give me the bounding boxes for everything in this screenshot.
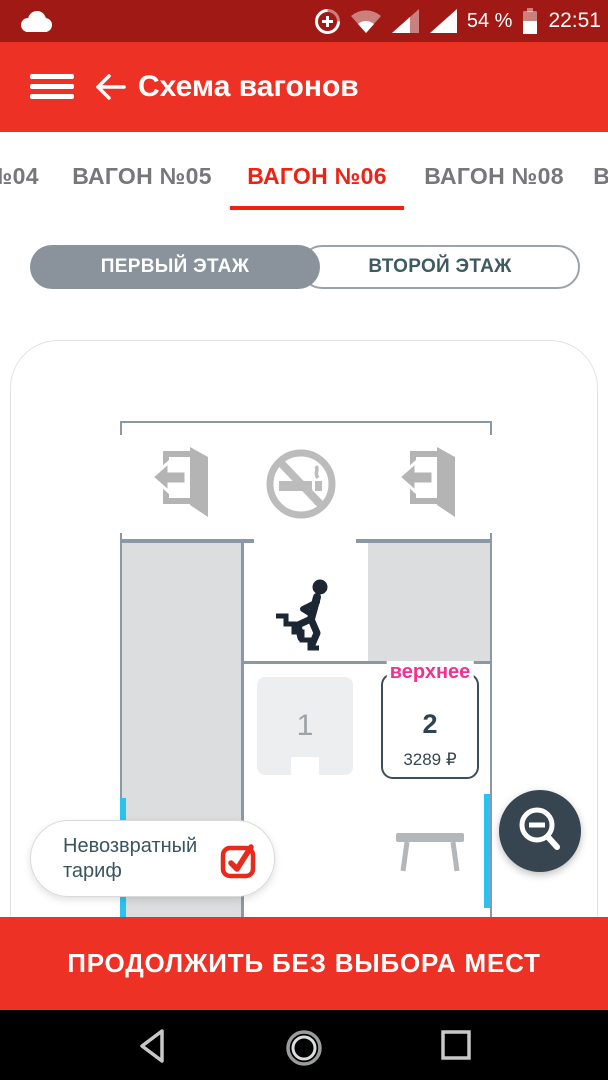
cell-signal-1-icon (391, 9, 420, 34)
tab-carriage-09[interactable]: ВАГОН №09 (593, 163, 608, 190)
status-bar: 54 % 22:51 (0, 0, 608, 42)
non-refundable-tariff-chip[interactable]: Невозвратный тариф (30, 820, 275, 897)
nav-home-icon[interactable] (284, 1028, 324, 1068)
tab-carriage-04[interactable]: ВАГОН №04 (0, 163, 39, 190)
carriage-tabs: ВАГОН №04 ВАГОН №05 ВАГОН №06 ВАГОН №08 … (0, 132, 608, 230)
tab-carriage-08[interactable]: ВАГОН №08 (424, 163, 564, 190)
car-right-wall (490, 533, 492, 926)
seat-2-price: 3289 ₽ (383, 750, 477, 770)
app-bar: Схема вагонов (0, 42, 608, 132)
cloud-icon (18, 10, 54, 34)
rzd-carriage-scheme-screen: 54 % 22:51 Схема вагонов ВАГОН №04 ВАГОН… (0, 0, 608, 1080)
tab-carriage-05[interactable]: ВАГОН №05 (72, 163, 212, 190)
car-top-left-tick (120, 421, 122, 435)
seat-1[interactable]: 1 (257, 677, 353, 775)
zoom-out-button[interactable] (499, 790, 581, 872)
nav-back-icon[interactable] (137, 1028, 167, 1064)
toggle-second-floor[interactable]: ВТОРОЙ ЭТАЖ (300, 245, 580, 289)
floor-toggle: ВТОРОЙ ЭТАЖ ПЕРВЫЙ ЭТАЖ (30, 245, 580, 289)
continue-without-seats-button[interactable]: ПРОДОЛЖИТЬ БЕЗ ВЫБОРА МЕСТ (0, 917, 608, 1010)
tariff-chip-label: Невозвратный тариф (63, 834, 213, 884)
data-saver-icon (314, 8, 341, 35)
menu-icon[interactable] (30, 74, 74, 104)
checkbox-checked-icon[interactable] (218, 839, 260, 881)
seat-1-number: 1 (297, 709, 314, 742)
seat-2-berth-type: верхнее (387, 661, 474, 684)
battery-icon (521, 7, 539, 35)
right-service-block (368, 543, 490, 663)
exit-door-right-icon (397, 445, 465, 519)
cell-signal-2-icon (429, 9, 458, 34)
nav-recents-icon[interactable] (439, 1028, 473, 1062)
available-marker-right (484, 794, 490, 908)
no-smoking-icon (263, 446, 339, 522)
seat-1-entry-notch (291, 757, 319, 775)
seat-2[interactable]: верхнее 2 3289 ₽ (381, 673, 479, 779)
stairs-person-icon (266, 576, 346, 654)
page-title: Схема вагонов (138, 42, 359, 132)
table-icon (394, 831, 466, 873)
active-tab-underline (230, 206, 404, 210)
zoom-out-magnifier-icon (510, 800, 570, 862)
back-arrow-icon[interactable] (92, 70, 128, 104)
android-nav-bar (0, 1010, 608, 1080)
wifi-icon (350, 9, 382, 34)
toggle-first-floor[interactable]: ПЕРВЫЙ ЭТАЖ (30, 245, 320, 289)
seat-2-number: 2 (383, 709, 477, 740)
car-top-wall (120, 421, 492, 423)
battery-percent: 54 % (467, 10, 513, 33)
car-top-right-tick (490, 421, 492, 435)
exit-door-left-icon (150, 445, 218, 519)
clock: 22:51 (548, 9, 601, 33)
tab-carriage-06[interactable]: ВАГОН №06 (247, 163, 387, 190)
